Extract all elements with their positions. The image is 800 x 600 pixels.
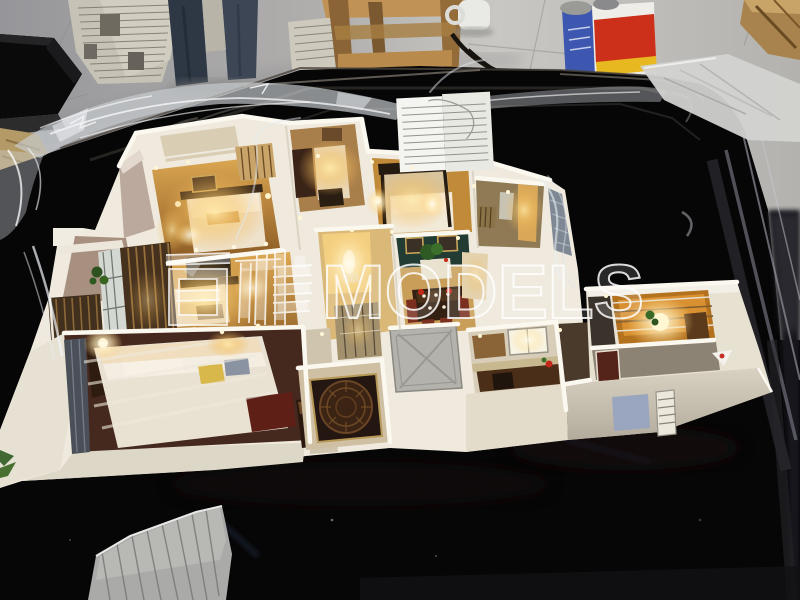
- svg-text:MODELS: MODELS: [322, 250, 644, 335]
